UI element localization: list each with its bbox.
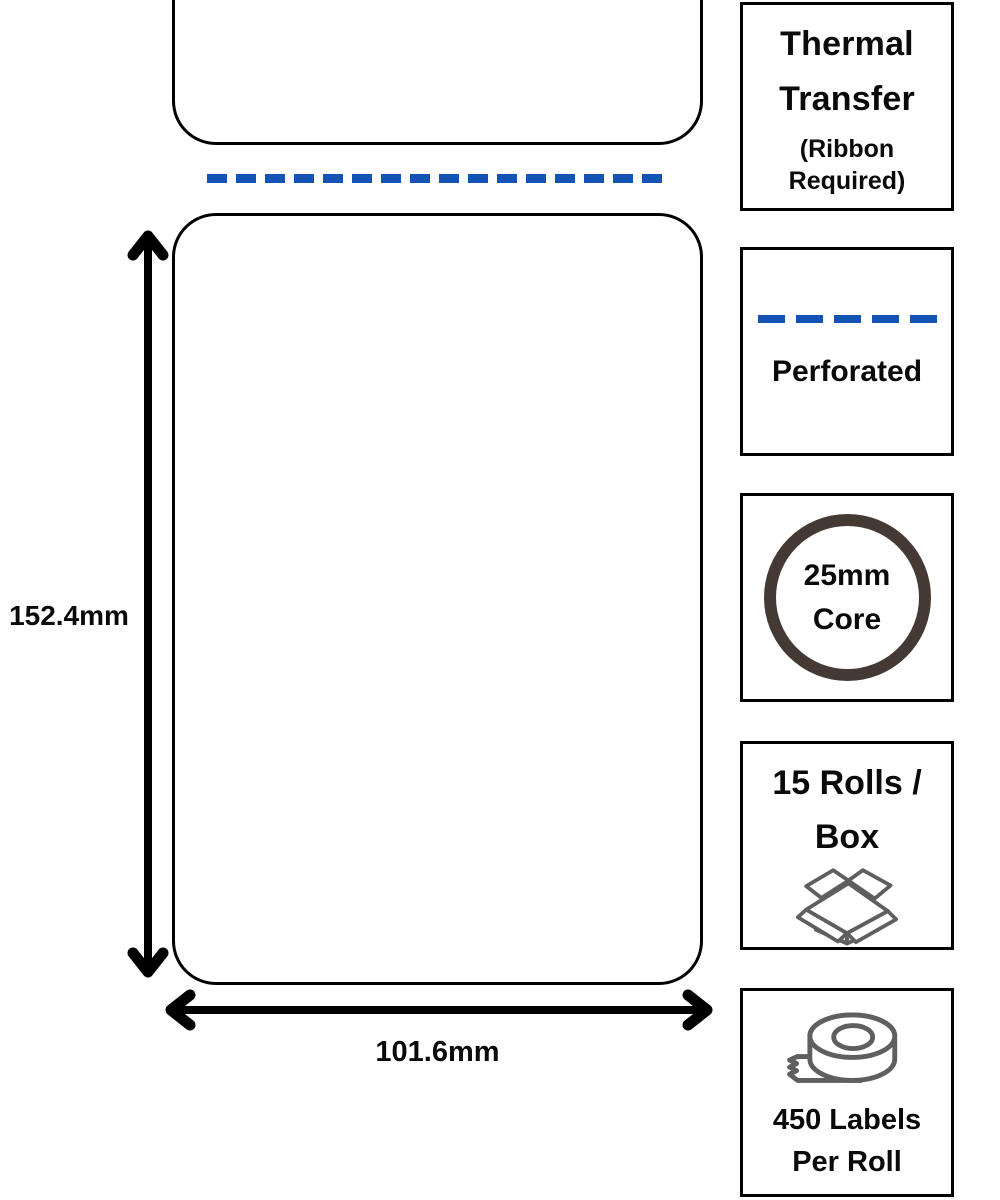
- core-label-line2: Core: [813, 598, 881, 642]
- label-main: [172, 213, 703, 985]
- core-label-line1: 25mm: [804, 554, 891, 598]
- ribbon-subtitle-line2: Required): [789, 165, 906, 197]
- rolls-per-box-line1: 15 Rolls /: [772, 756, 921, 810]
- thermal-title-line2: Transfer: [779, 72, 915, 127]
- roll-core-ring-icon: 25mm Core: [764, 514, 931, 681]
- labels-per-roll-line2: Per Roll: [773, 1141, 921, 1183]
- labels-per-roll-line1: 450 Labels: [773, 1099, 921, 1141]
- perforation-dashes-icon: [758, 315, 937, 323]
- open-shipping-box-icon: [786, 864, 908, 947]
- feature-box-core: 25mm Core: [740, 493, 954, 702]
- rolls-per-box-line2: Box: [815, 810, 879, 864]
- perforated-label: Perforated: [772, 355, 922, 389]
- label-tape-roll-icon: [784, 1007, 910, 1091]
- width-dimension-arrow: [163, 988, 715, 1032]
- feature-box-thermal-transfer: Thermal Transfer (Ribbon Required): [740, 2, 954, 211]
- feature-box-labels-per-roll: 450 Labels Per Roll: [740, 988, 954, 1197]
- label-spec-infographic: 152.4mm 101.6mm Thermal Transfer (Ribbon…: [0, 0, 1000, 1200]
- height-dimension-label: 152.4mm: [4, 600, 134, 632]
- width-dimension-label: 101.6mm: [172, 1036, 703, 1069]
- feature-box-perforated: Perforated: [740, 247, 954, 456]
- label-top-partial: [172, 0, 703, 145]
- perforation-dashed-line: [207, 174, 671, 183]
- ribbon-subtitle-line1: (Ribbon: [789, 133, 906, 165]
- feature-box-rolls-per-box: 15 Rolls / Box: [740, 741, 954, 950]
- thermal-title-line1: Thermal: [779, 17, 915, 72]
